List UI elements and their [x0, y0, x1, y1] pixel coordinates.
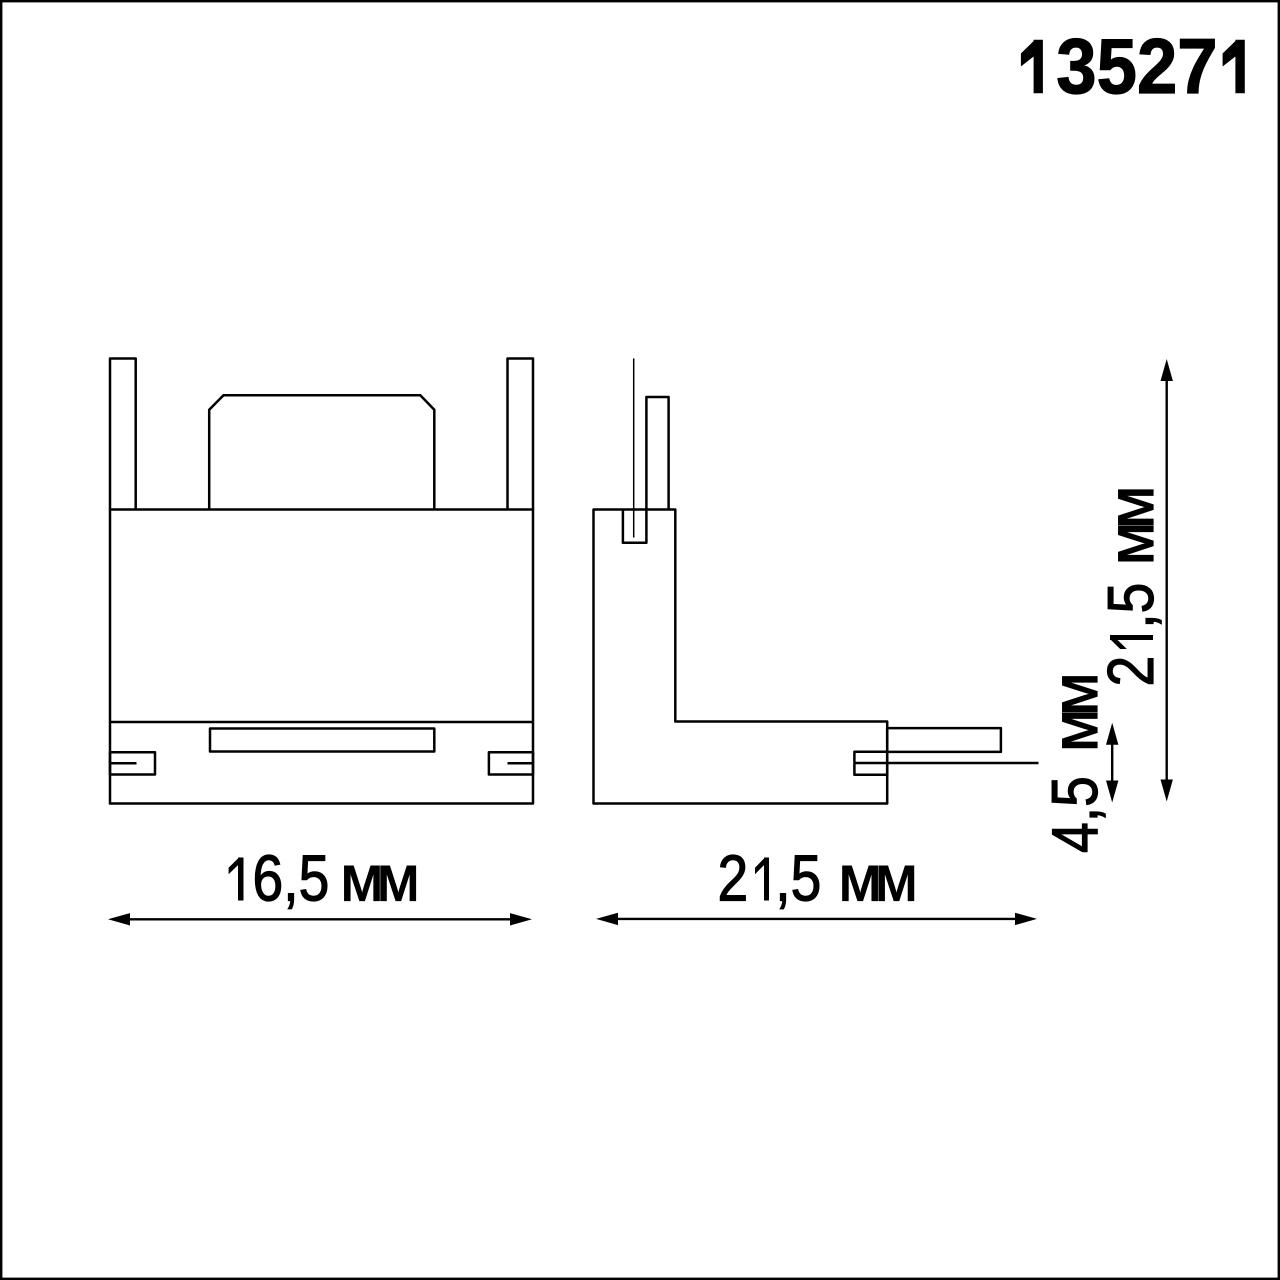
- svg-text:,5: ,5: [1094, 583, 1167, 629]
- svg-text:,5: ,5: [775, 841, 821, 914]
- svg-text:4,5: 4,5: [1038, 776, 1111, 853]
- svg-text:мм: мм: [1094, 490, 1167, 566]
- svg-text:2: 2: [718, 841, 749, 914]
- svg-text:мм: мм: [1038, 676, 1111, 752]
- svg-text:мм: мм: [838, 842, 914, 915]
- svg-text:6,5: 6,5: [253, 841, 330, 914]
- svg-text:мм: мм: [340, 842, 416, 915]
- svg-text:3527: 3527: [1056, 23, 1217, 110]
